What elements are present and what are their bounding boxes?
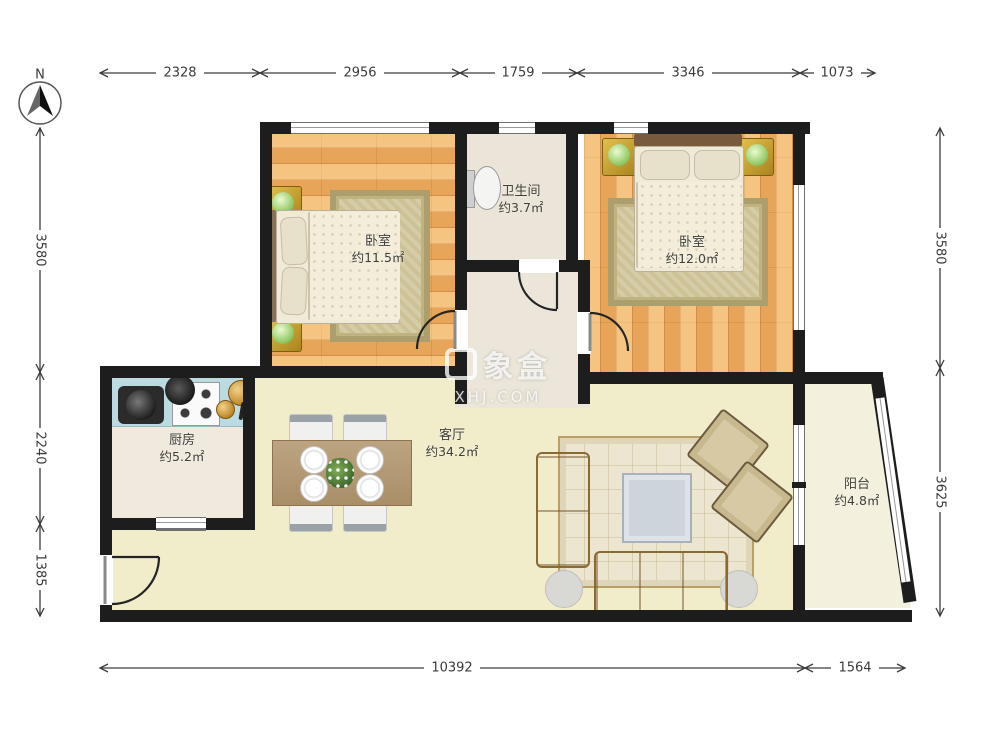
wall xyxy=(260,122,272,374)
wall xyxy=(578,372,805,384)
side-table xyxy=(545,570,583,608)
floor-plan: 卧室 约11.5㎡ 卫生间 约3.7㎡ 卧室 约12.0㎡ 厨房 约5.2㎡ 客… xyxy=(0,0,1000,750)
room-name: 卧室 xyxy=(647,235,737,251)
plate xyxy=(356,446,384,474)
svg-text:1759: 1759 xyxy=(501,66,534,81)
room-area: 约11.5㎡ xyxy=(333,250,423,266)
lamp xyxy=(746,144,768,166)
door-opening xyxy=(99,555,113,605)
room-label-balcony: 阳台 约4.8㎡ xyxy=(817,477,897,509)
lamp xyxy=(608,144,630,166)
dimension-right-labels: 3580 3625 xyxy=(933,231,948,508)
room-label-bedroom-right: 卧室 约12.0㎡ xyxy=(647,235,737,267)
nightstand xyxy=(740,138,774,176)
north-arrow: N xyxy=(19,68,61,125)
room-name: 阳台 xyxy=(817,477,897,493)
dining-chair xyxy=(289,504,333,532)
plate xyxy=(300,474,328,502)
room-name: 客厅 xyxy=(407,428,497,444)
svg-text:3346: 3346 xyxy=(671,66,704,81)
plate xyxy=(356,474,384,502)
room-area: 约34.2㎡ xyxy=(407,444,497,460)
room-name: 厨房 xyxy=(137,433,227,449)
duvet xyxy=(308,212,400,320)
dining-chair xyxy=(343,414,387,442)
three-seat-sofa xyxy=(594,551,728,617)
svg-text:2240: 2240 xyxy=(33,431,48,464)
room-area: 约12.0㎡ xyxy=(647,251,737,267)
wall xyxy=(100,610,912,622)
room-label-kitchen: 厨房 约5.2㎡ xyxy=(137,433,227,465)
svg-text:1073: 1073 xyxy=(820,66,853,81)
dimension-left-labels: 3580 2240 1385 xyxy=(33,233,48,586)
kitchen-sliding-door xyxy=(156,517,206,531)
bowl xyxy=(216,400,235,419)
wall xyxy=(793,372,883,384)
watermark-site: XHJ.COM xyxy=(418,388,578,406)
window xyxy=(614,122,648,134)
window xyxy=(499,122,535,134)
svg-text:1385: 1385 xyxy=(33,553,48,586)
loveseat-sofa xyxy=(536,452,590,568)
svg-text:2328: 2328 xyxy=(163,66,196,81)
room-name: 卫生间 xyxy=(476,184,566,200)
dimension-bottom-labels: 10392 1564 xyxy=(431,661,871,676)
svg-text:3580: 3580 xyxy=(933,231,948,264)
lamp xyxy=(272,322,294,344)
dining-chair xyxy=(343,504,387,532)
window xyxy=(291,122,429,134)
pillow xyxy=(280,266,308,315)
room-area: 约3.7㎡ xyxy=(476,200,566,216)
balcony-sliding-door xyxy=(793,487,805,545)
room-label-bedroom-left: 卧室 约11.5㎡ xyxy=(333,234,423,266)
window xyxy=(793,185,805,330)
plate xyxy=(300,446,328,474)
room-name: 卧室 xyxy=(333,234,423,250)
watermark: 象盒 XHJ.COM xyxy=(418,342,578,406)
north-label: N xyxy=(35,68,45,83)
pillow xyxy=(280,216,308,265)
wall xyxy=(566,122,578,272)
svg-text:3580: 3580 xyxy=(33,233,48,266)
wall xyxy=(100,366,467,378)
room-area: 约4.8㎡ xyxy=(817,493,897,509)
pillow xyxy=(640,150,690,180)
room-area: 约5.2㎡ xyxy=(137,449,227,465)
bed-headboard xyxy=(634,134,742,146)
dimension-top-labels: 2328 2956 1759 3346 1073 xyxy=(163,66,853,81)
coffee-table xyxy=(622,473,692,543)
wok-pan xyxy=(165,375,195,405)
balcony-sliding-door xyxy=(793,425,805,483)
door-opening xyxy=(519,259,559,273)
flower-centerpiece xyxy=(326,458,354,488)
dining-chair xyxy=(289,414,333,442)
svg-text:1564: 1564 xyxy=(838,661,871,676)
door-opening xyxy=(577,312,591,354)
svg-text:3625: 3625 xyxy=(933,475,948,508)
nightstand xyxy=(602,138,638,176)
kitchen-sink xyxy=(118,386,164,424)
sink-basin xyxy=(126,390,156,420)
wall xyxy=(243,366,255,530)
svg-text:10392: 10392 xyxy=(431,661,472,676)
room-label-bathroom: 卫生间 约3.7㎡ xyxy=(476,184,566,216)
watermark-logo-icon xyxy=(445,348,477,380)
watermark-brand: 象盒 xyxy=(483,342,551,386)
pillow xyxy=(694,150,740,180)
svg-text:2956: 2956 xyxy=(343,66,376,81)
window-divider xyxy=(792,482,806,488)
room-label-living-room: 客厅 约34.2㎡ xyxy=(407,428,497,460)
